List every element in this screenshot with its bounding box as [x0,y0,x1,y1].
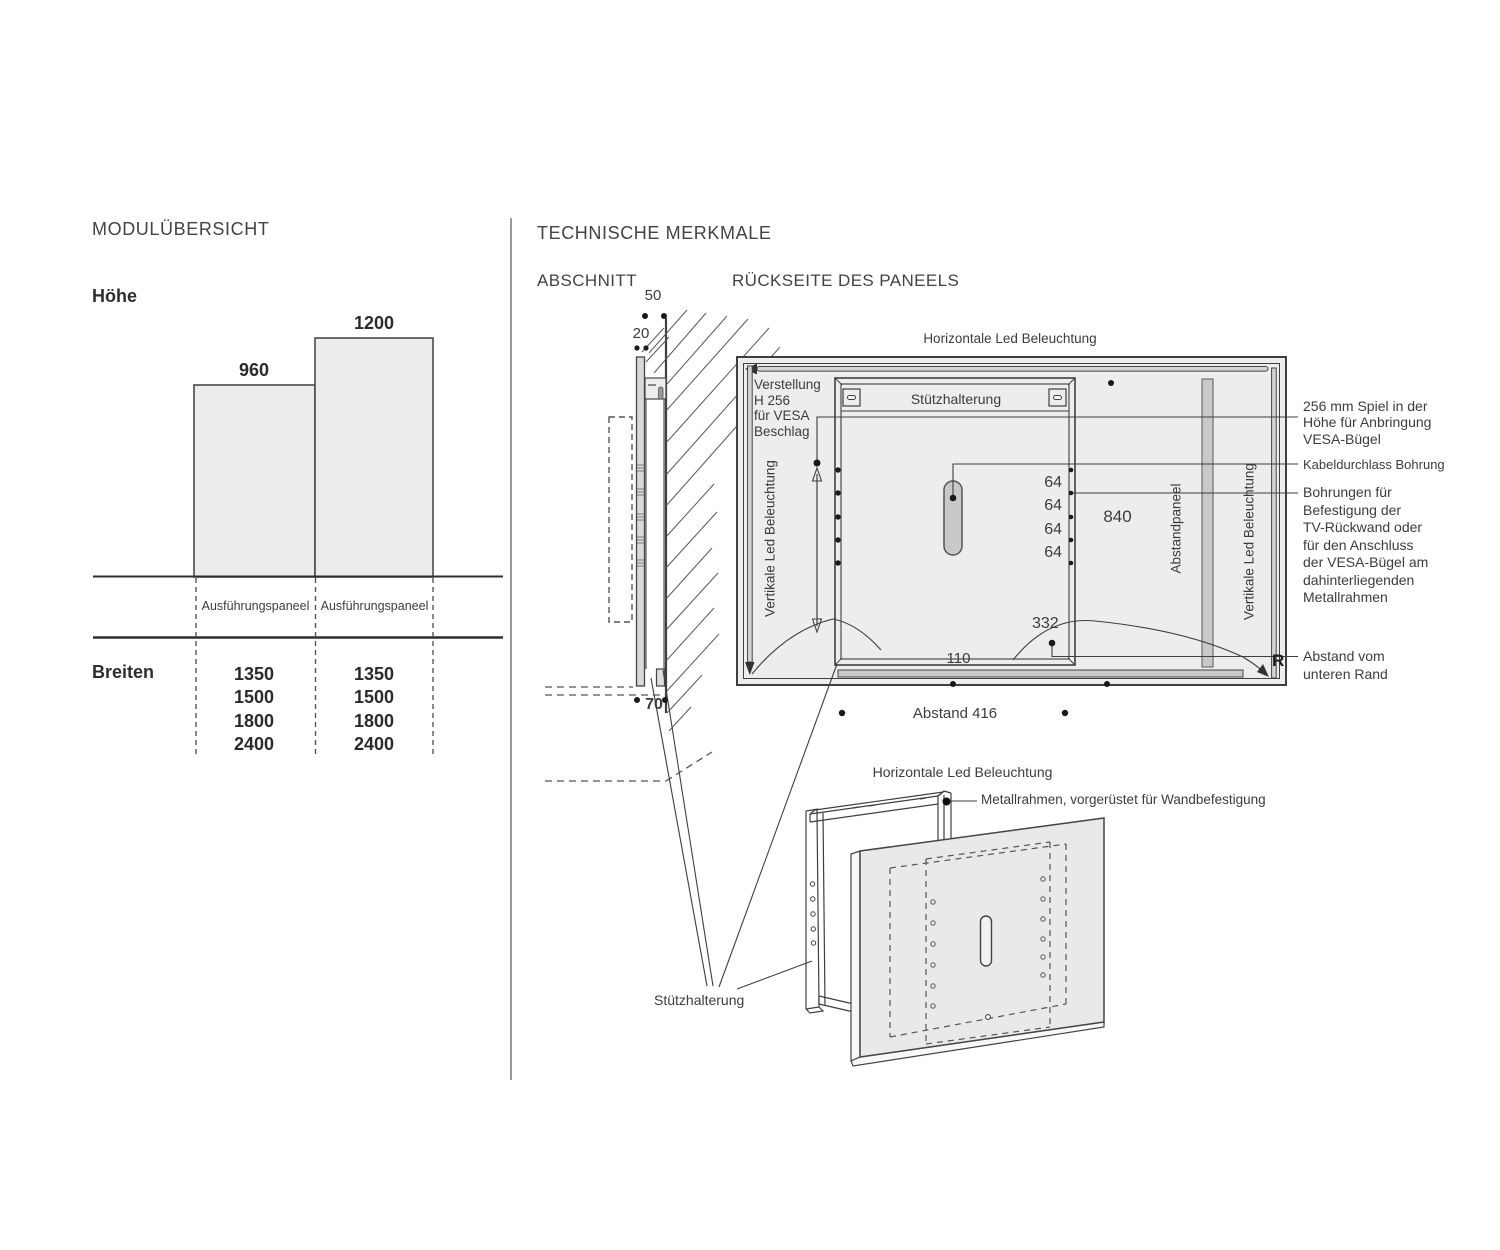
bar-large-value: 1200 [324,313,424,334]
bar-small-value: 960 [204,360,304,381]
dim-840: 840 [1095,507,1140,527]
col2-header: Ausführungspaneel [317,599,432,613]
annotation-bottom-edge: Abstand vom unteren Rand [1303,648,1388,683]
stile-holes [810,882,815,945]
annotation-mount-holes: Bohrungen für Befestigung der TV-Rückwan… [1303,484,1428,607]
technical-title: TECHNISCHE MERKMALE [537,223,771,244]
section-dim-20: 20 [626,325,656,342]
vertical-led-right-label: Vertikale Led Beleuchtung [1242,457,1257,627]
section-dim-70: 70 [639,696,669,714]
bottom-distance-label: Abstand 416 [890,705,1020,722]
col1-header: Ausführungspaneel [198,599,313,613]
vertical-led-bar-left [748,366,753,662]
diagram-linework [0,0,1500,1250]
tv-dashed-outline [609,417,632,622]
vertical-led-bar-right [1272,368,1277,678]
section-title: ABSCHNITT [537,271,637,291]
panel-hole [986,1015,991,1020]
rear-horizontal-led-label: Horizontale Led Beleuchtung [910,331,1110,346]
exploded-horizontal-led-label: Horizontale Led Beleuchtung [855,764,1070,780]
widths-col2: 1350 1500 1800 2400 [324,663,424,756]
technical-datasheet-page: { "colors": { "line": "#3f3f3f", "panel_… [0,0,1500,1250]
vertical-led-left-label: Vertikale Led Beleuchtung [763,454,778,624]
module-overview-title: MODULÜBERSICHT [92,219,269,240]
spacer-panel-bar [1202,379,1213,667]
exploded-metal-frame-label: Metallrahmen, vorgerüstet für Wandbefest… [981,792,1266,807]
annotation-vesa-play: 256 mm Spiel in der Höhe für Anbringung … [1303,398,1431,447]
bottom-support-bar [838,670,1243,677]
dim-332: 332 [1032,615,1059,633]
widths-col1: 1350 1500 1800 2400 [204,663,304,756]
spacer-panel-label: Abstandpaneel [1169,469,1184,589]
exploded-view-drawing [806,791,1104,1066]
section-dim-50: 50 [638,287,668,304]
rear-view-drawing [737,357,1298,716]
exploded-support-bracket-label: Stützhalterung [654,992,744,1008]
horizontal-led-bar [757,367,1268,372]
dim-110: 110 [936,650,981,667]
support-bracket-label: Stützhalterung [886,391,1026,407]
panel-cable-slot [981,916,992,966]
vesa-adjustment-note: Verstellung H 256 für VESA Beschlag [754,377,821,439]
metal-frame-dot [943,798,951,806]
panel-side-face [851,851,860,1061]
height-label: Höhe [92,286,137,307]
detail-leader-lines [651,664,837,989]
rear-view-title: RÜCKSEITE DES PANEELS [732,271,959,291]
widths-label: Breiten [92,662,154,683]
corner-r-mark: R [1272,651,1284,671]
hole-spacing-dims: 64 64 64 64 [1022,471,1062,564]
annotation-cable-hole: Kabeldurchlass Bohrung [1303,457,1445,472]
